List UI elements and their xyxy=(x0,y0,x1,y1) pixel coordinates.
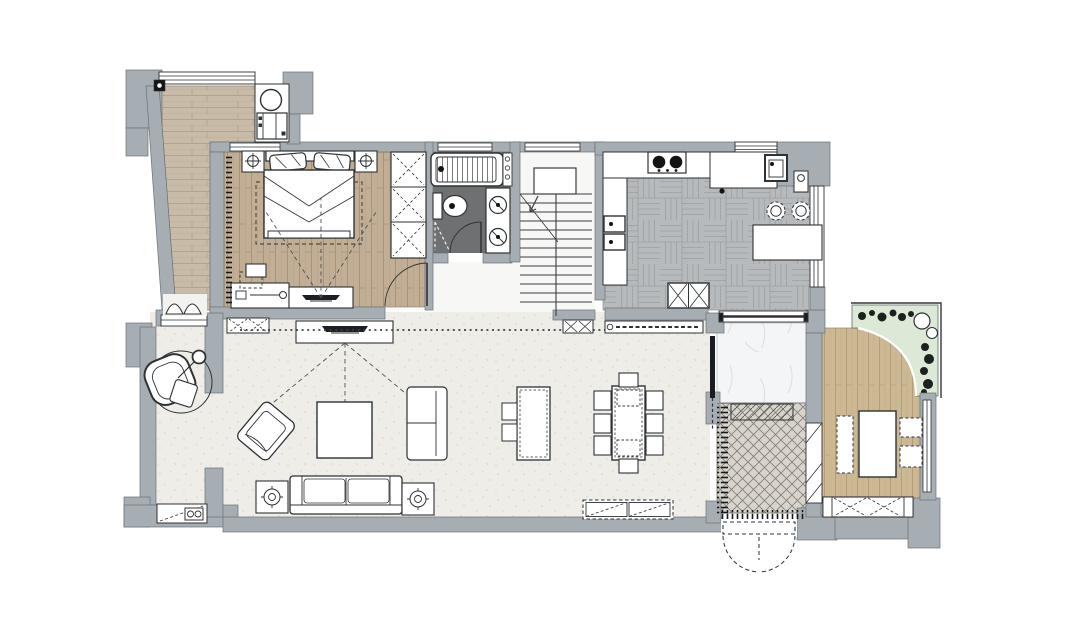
corner-faucet-icon xyxy=(719,188,724,193)
curtain-icon xyxy=(226,154,232,306)
bifold-door-icon xyxy=(163,294,207,316)
tea-room-door-panel xyxy=(806,423,822,503)
floor-cushion-icon xyxy=(900,418,922,437)
bathtub-icon xyxy=(431,153,503,186)
beverage-counter-icon xyxy=(157,504,207,523)
speaker-side-table-icon xyxy=(402,483,434,515)
double-vanity-icon xyxy=(486,188,510,253)
wall-cabinet-icon xyxy=(563,320,593,333)
stair-window xyxy=(525,143,580,151)
floor-cushion-icon xyxy=(900,446,922,467)
tea-room-right-window xyxy=(923,400,931,492)
balcony-window xyxy=(159,72,255,84)
passage-window xyxy=(719,311,808,322)
floor-plan-canvas xyxy=(0,0,1080,637)
bar-stool-icon xyxy=(767,202,785,220)
tea-room-items xyxy=(823,411,922,517)
room-mudroom-passage xyxy=(717,323,809,403)
prep-sink-icon xyxy=(765,155,787,181)
bar-stool-icon xyxy=(792,202,810,220)
sideboard-icon xyxy=(583,500,673,519)
speaker-side-table-icon xyxy=(256,481,288,513)
bedroom-top-window xyxy=(230,143,280,151)
refrigerator-icon xyxy=(668,283,709,308)
bench-icon xyxy=(837,416,853,473)
doormat-icon xyxy=(731,404,793,420)
sideboard-top-icon xyxy=(605,321,703,333)
dining-table-icon xyxy=(612,386,645,460)
bar-counter xyxy=(753,225,822,260)
living-tv-console-icon xyxy=(296,321,393,343)
tea-table-icon xyxy=(859,411,896,477)
sofa-icon xyxy=(290,476,402,514)
low-cabinet-icon xyxy=(823,497,913,517)
floor-plan-drawing xyxy=(0,0,1080,637)
chaise-seat-icon xyxy=(407,387,447,460)
stair-landing xyxy=(534,168,576,194)
entry-double-door-icon xyxy=(721,519,797,572)
foyer-edge-strip xyxy=(717,403,728,515)
nightstand-left-icon xyxy=(242,151,264,172)
foyer-bottom-strip xyxy=(719,510,806,519)
gas-hob-icon xyxy=(648,152,686,173)
coffee-table-icon xyxy=(317,402,372,458)
water-unit-icon xyxy=(794,171,808,192)
toilet-icon xyxy=(433,193,467,219)
balcony-threshold xyxy=(161,315,207,326)
dresser-icon xyxy=(246,264,266,277)
plant-pot-icon xyxy=(914,313,930,329)
bathroom-window xyxy=(438,143,492,151)
bath-shelf-icon xyxy=(503,153,512,186)
nightstand-right-icon xyxy=(355,151,377,172)
wardrobe-icon xyxy=(391,152,426,258)
laundry-cabinet-icon xyxy=(257,113,287,139)
plant-pot-icon xyxy=(927,328,938,339)
washing-machine-icon xyxy=(261,90,282,111)
